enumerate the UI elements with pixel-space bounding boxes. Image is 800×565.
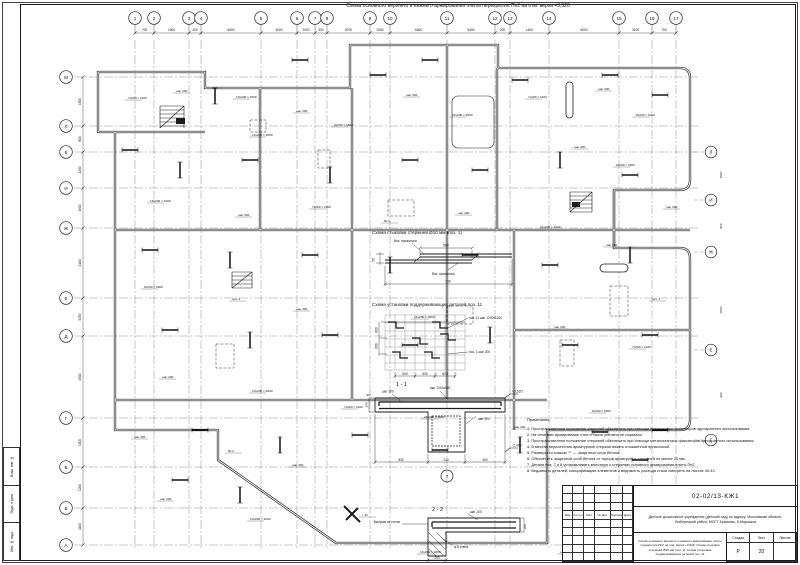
axis-bubble-label: 1 <box>134 16 137 21</box>
revision-cell <box>611 553 623 561</box>
axis-bubble-label: М <box>64 75 68 80</box>
axis-bubble-label: И <box>64 186 67 191</box>
support-dim: 600 <box>422 372 428 376</box>
drawing-sheet: Схема основного верхнего и нижнего армир… <box>0 0 800 565</box>
top-dim: 6400 <box>227 28 234 32</box>
revision-cell <box>595 486 611 494</box>
revision-cell <box>611 536 623 544</box>
axis-bubble-label: Л <box>710 150 713 155</box>
rebar-annotation: 14x200 = 2800 <box>252 133 273 137</box>
revision-col-header: Лист <box>584 511 595 519</box>
rebar-annotation: 24x200 = 4800 <box>452 113 473 117</box>
revision-cell <box>623 486 633 494</box>
stage-value: Р <box>727 543 750 562</box>
revision-cell <box>595 536 611 544</box>
revision-cell <box>573 486 584 494</box>
rebar-annotation: шаг 200 <box>296 307 308 311</box>
revision-cell <box>584 494 595 502</box>
support-step-label: поз. 1 шаг 200 <box>469 350 490 354</box>
revision-cell <box>563 528 573 536</box>
wall-material-label: ж.б стена <box>454 545 468 549</box>
rebar-annotation: шаг 200 <box>574 145 586 149</box>
revision-cell <box>611 545 623 553</box>
wall-outlets-label: Выпуски из стены <box>374 520 401 524</box>
rebar-annotation: 7x200 = 1400 <box>632 345 651 349</box>
rebar-annotation: 7x200 = 1400 <box>344 405 363 409</box>
revision-cell <box>595 553 611 561</box>
chamfer-cross-mark <box>344 506 360 522</box>
s11-label: шаг 200 <box>478 417 490 421</box>
axis-bubble-label: 7 <box>446 474 449 479</box>
axis-bubble-label: Л <box>64 124 67 129</box>
left-dim: 1200 <box>78 166 82 173</box>
stair-symbol <box>232 272 252 288</box>
rebar-annotation: шаг 200 <box>238 213 250 217</box>
top-dim: 2000 <box>302 28 309 32</box>
revision-cell <box>611 494 623 502</box>
revision-cell <box>611 486 623 494</box>
stamp-cell: Взам. инв. № <box>3 447 20 485</box>
left-dim: 1500 <box>78 439 82 446</box>
rebar-annotation: 9x200 = 1800 <box>616 163 635 167</box>
notes-list: 1. Пространственное положение стержней о… <box>527 426 765 474</box>
notes-heading: Примечания <box>527 417 765 423</box>
revision-cell <box>623 494 633 502</box>
rebar-annotation: поз. 1 <box>652 297 660 301</box>
top-dim: 6000 <box>580 28 587 32</box>
stamp-cell: Подп. и дата <box>3 485 20 523</box>
support-title: Схема установки поддерживающих деталей п… <box>372 301 483 307</box>
revision-cell <box>584 553 595 561</box>
rebar-annotation: 9x200 = 1800 <box>144 285 163 289</box>
revision-cell <box>563 545 573 553</box>
revision-cell <box>563 494 573 502</box>
rebar-annotation: 1500 <box>719 171 723 178</box>
axis-bubble-label: Е <box>710 348 713 353</box>
stair-symbol <box>570 192 592 212</box>
rebar-annotation: 7x200 = 1400 <box>312 205 331 209</box>
stamp-cell: Инв. № подл. <box>3 522 20 561</box>
axis-bubble-label: 15 <box>616 16 622 21</box>
axis-bubble-label: В <box>64 465 67 470</box>
wire-label: Вяз. проволока <box>432 272 455 276</box>
rebar-annotation: 16x200 = 3200 <box>150 199 171 203</box>
revision-cell <box>563 503 573 511</box>
revision-cell <box>573 503 584 511</box>
axis-bubble-label: 17 <box>673 16 679 21</box>
rebar-annotation: 14x200 = 2800 <box>414 315 435 319</box>
axis-bubble-label: 4 <box>200 16 203 21</box>
document-number: 02-02/13-КЖ1 <box>634 486 797 507</box>
slot-details <box>452 82 628 272</box>
revision-cell <box>595 494 611 502</box>
revision-table: ИзмКол.учЛист№ Док.ПодписьДата <box>563 486 634 562</box>
rebar-annotation: шаг 200 <box>134 435 146 439</box>
rebar-annotation: 24x200 = 5800 <box>424 415 445 419</box>
axis-bubble-label: 6 <box>296 16 299 21</box>
s11-label: шаг 1000х500 <box>430 386 451 390</box>
sheet-number: 20 <box>750 543 773 562</box>
sheets-total <box>774 543 797 562</box>
revision-cell <box>611 520 623 528</box>
s11-dim: 240 <box>443 458 449 462</box>
sheet-label: Лист <box>750 533 773 543</box>
title-block: ИзмКол.учЛист№ Док.ПодписьДата 02-02/13-… <box>562 485 798 563</box>
support-dim: 600 <box>375 343 379 349</box>
top-dim: 4000 <box>275 28 282 32</box>
s11-label: шаг 200 <box>382 390 394 394</box>
revision-cell <box>623 520 633 528</box>
revision-cell <box>595 503 611 511</box>
revision-cell <box>623 545 633 553</box>
rebar-annotation: 9x200 = 1800 <box>592 409 611 413</box>
axis-bubble-label: 5 <box>260 16 263 21</box>
rebar-annotation: 10x200 = 2000 <box>252 389 273 393</box>
rebar-annotation: т 32 <box>362 513 368 517</box>
revision-cell <box>573 553 584 561</box>
height-dim: 50 <box>372 258 376 262</box>
support-dim: 600 <box>375 327 379 333</box>
elevation-top: +3,520 <box>512 390 523 394</box>
top-dim: 6400 <box>415 28 422 32</box>
revision-cell <box>563 536 573 544</box>
stamp-label: Подп. и дата <box>10 494 14 513</box>
top-dim: 1400 <box>526 28 533 32</box>
left-dim: 800 <box>78 136 82 142</box>
s11-dim: 400 <box>482 458 488 462</box>
project-name: Детское дошкольное учреждение (детский с… <box>634 507 797 533</box>
revision-col-header: Дата <box>623 511 633 519</box>
notes-block: Примечания 1. Пространственное положение… <box>527 417 765 474</box>
revision-cell <box>595 545 611 553</box>
revision-cell <box>595 528 611 536</box>
revision-cell <box>623 536 633 544</box>
revision-cell <box>595 520 611 528</box>
left-dim: 5250 <box>78 313 82 320</box>
revision-cell <box>573 528 584 536</box>
stage-label: Стадия <box>727 533 750 543</box>
margin-stamps: Взам. инв. № Подп. и дата Инв. № подл. <box>3 447 20 561</box>
rebar-annotation: 7x200 = 1400 <box>128 96 147 100</box>
s22-label: шаг 200 <box>470 510 482 514</box>
rebar-annotation: 800 <box>719 223 723 228</box>
stamp-label: Инв. № подл. <box>10 531 14 552</box>
top-dim: 3100 <box>632 28 639 32</box>
axis-bubble-label: Е <box>64 296 67 301</box>
axis-bubble-label: Ж <box>709 250 713 255</box>
section-title: 2 - 2 <box>432 507 443 513</box>
rebar-annotation: шаг 200 <box>554 325 566 329</box>
rebar-annotation: поз. 2 <box>232 297 240 301</box>
rebar-annotation: шаг 200 <box>162 375 174 379</box>
rebar-annotation: 1500 <box>719 306 723 313</box>
revision-cell <box>563 486 573 494</box>
rebar-annotation: шаг 200 <box>514 425 526 429</box>
top-dim: 5450 <box>467 28 474 32</box>
rebar-annotation: шаг 200 <box>598 87 610 91</box>
s11-dim: 200 <box>365 402 369 407</box>
left-dim: 1500 <box>78 204 82 211</box>
axis-bubble-label: И <box>709 198 712 203</box>
revision-cell <box>573 536 584 544</box>
rebar-annotation: 5x200 = 1000 <box>636 113 655 117</box>
rebar-annotation: 7x200 = 1400 <box>528 95 547 99</box>
left-dim: 2100 <box>78 259 82 266</box>
rebar-annotation: 900 <box>719 392 723 397</box>
top-dim: 700 <box>661 28 667 32</box>
sheets-label: Листов <box>774 533 797 543</box>
rebar-annotation: № 1 <box>384 219 390 223</box>
revision-cell <box>563 553 573 561</box>
total-dim: 730 <box>445 280 451 284</box>
left-dim: 1500 <box>78 98 82 105</box>
left-dim: 1200 <box>78 484 82 491</box>
rebar-annotation: 21x200 = 4200 <box>540 225 561 229</box>
splice-title: Схема стыковки стержней Ø10 мм (поз. 1) <box>372 229 462 235</box>
revision-cell <box>623 553 633 561</box>
axis-bubble-label: 10 <box>387 16 393 21</box>
axis-bubble-label: 16 <box>649 16 655 21</box>
rebar-annotation: шаг 200 <box>160 497 172 501</box>
section-title: 1 - 1 <box>396 382 407 388</box>
revision-cell <box>584 520 595 528</box>
revision-cell <box>584 503 595 511</box>
revision-cell <box>573 545 584 553</box>
top-dim: 400 <box>192 28 198 32</box>
revision-col-header: Подпись <box>611 511 623 519</box>
plan-canvas: 7001900400640040002000300570020506400545… <box>0 0 800 565</box>
support-dim: 600 <box>442 372 448 376</box>
s11-dim: 530 <box>398 458 404 462</box>
revision-col-header: Кол.уч <box>573 511 584 519</box>
rebar-annotation: шаг 200 <box>292 463 304 467</box>
stage-sheet-grid: Стадия Лист Листов Р 20 <box>727 533 797 562</box>
revision-cell <box>623 503 633 511</box>
rebar-annotation: 9x200 = 1800 <box>334 123 353 127</box>
stamp-label: Взам. инв. № <box>10 456 14 477</box>
drawing-name: Схема основного верхнего и нижнего армир… <box>634 533 727 562</box>
left-dim: 2500 <box>78 373 82 380</box>
rebar-annotation: шаг 200 <box>458 211 470 215</box>
axis-bubble-label: 13 <box>507 16 513 21</box>
axis-bubble-label: 2 <box>153 16 156 21</box>
axis-bubble-label: 8 <box>326 16 329 21</box>
left-dim: 1100 <box>78 523 82 530</box>
axis-bubble-label: 11 <box>445 16 450 21</box>
support-scheme: Схема установки поддерживающих деталей п… <box>372 301 502 378</box>
axis-bubble-label: 3 <box>188 16 191 21</box>
top-dim: 5700 <box>345 28 352 32</box>
rebar-annotation: № 2 <box>228 449 234 453</box>
revision-cell <box>573 494 584 502</box>
axis-bubble-label: 12 <box>492 16 498 21</box>
axis-bubble-label: 9 <box>369 16 372 21</box>
revision-cell <box>584 528 595 536</box>
top-dim: 700 <box>142 28 148 32</box>
revision-cell <box>563 520 573 528</box>
revision-cell <box>573 520 584 528</box>
revision-cell <box>611 503 623 511</box>
rebar-annotation: шаг 200 <box>406 93 418 97</box>
note-item: 8. Ведомость деталей, спецификацию элеме… <box>527 468 765 474</box>
plan-annotations: 7x200 = 1400шаг 20010x200 = 2000шаг 2001… <box>125 87 723 554</box>
axis-bubble-label: Б <box>64 506 67 511</box>
rebar-annotation: шаг 200 <box>666 205 678 209</box>
elevation-bottom: -2,400 <box>512 444 522 448</box>
splice-scheme: Схема стыковки стержней Ø10 мм (поз. 1) … <box>372 229 514 286</box>
rebar-annotation: шаг 200 <box>606 243 618 247</box>
axis-bubble-label: К <box>65 150 68 155</box>
top-dim: 1900 <box>168 28 175 32</box>
revision-cell <box>584 545 595 553</box>
s11-dim: 30* <box>366 393 371 397</box>
revision-cell <box>611 528 623 536</box>
revision-cell <box>623 528 633 536</box>
lap-dim: 500 <box>443 244 449 248</box>
s22-dim: 200 <box>523 524 527 529</box>
wire-label: Вяз. проволока <box>394 239 417 243</box>
top-dim: 2050 <box>376 28 383 32</box>
top-dim: 300 <box>318 28 324 32</box>
revision-cell <box>584 486 595 494</box>
rebar-annotation: 10x200 = 2000 <box>250 517 271 521</box>
rebar-annotation: шаг 200 <box>176 89 188 93</box>
revision-cell <box>584 536 595 544</box>
s22-dim: 200 <box>434 556 440 560</box>
axis-bubble-label: 7 <box>314 16 317 21</box>
support-pos-label: поз. 11 шаг 1200х1200 <box>469 316 502 320</box>
revision-col-header: Изм <box>563 511 573 519</box>
support-dim: 600 <box>402 372 408 376</box>
section-2-2: 2 - 2 шаг 200 ж.б стена Выпуски из стены… <box>374 507 527 562</box>
stair-symbol <box>160 106 185 128</box>
rebar-annotation: 10x200 = 2000 <box>236 95 257 99</box>
revision-col-header: № Док. <box>595 511 611 519</box>
rebar-annotation: шаг 200 <box>296 109 308 113</box>
top-dim: 200 <box>500 28 506 32</box>
axis-bubble-label: 14 <box>546 16 552 21</box>
